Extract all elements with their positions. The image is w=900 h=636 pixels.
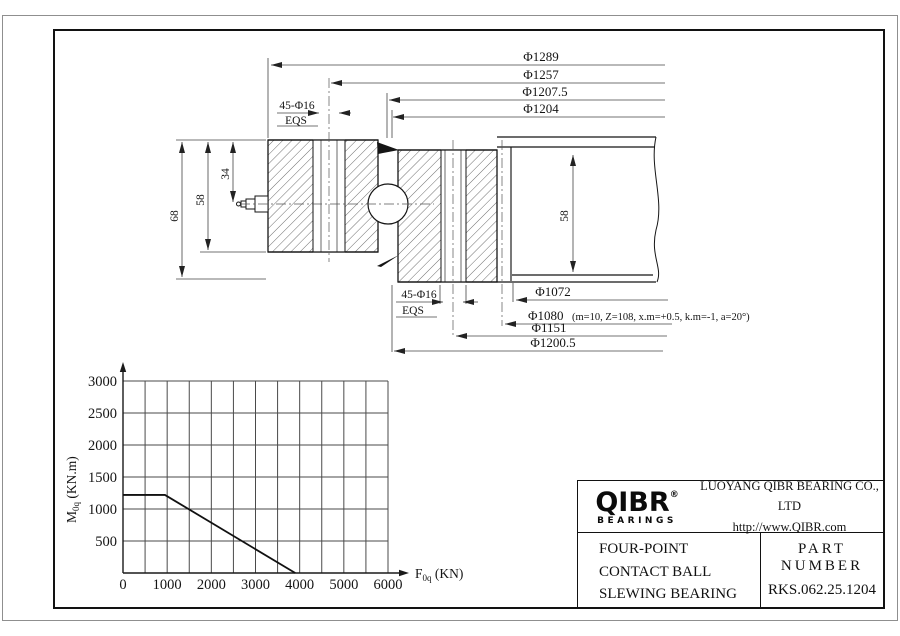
company-name: LUOYANG QIBR BEARING CO., LTD <box>696 476 883 517</box>
chart-grid <box>123 381 388 573</box>
dim-height-68: 68 <box>169 210 181 222</box>
dim-bottom-bolt-size: 45-Φ16 <box>401 289 436 301</box>
dim-phi1080-gear-note: (m=10, Z=108, x.m=+0.5, k.m=-1, a=20°) <box>572 312 750 323</box>
dim-phi1072: Φ1072 <box>535 284 571 299</box>
x-tick-4000: 4000 <box>285 577 314 593</box>
break-line <box>654 137 659 282</box>
dim-phi1204: Φ1204 <box>523 101 559 116</box>
y-tick-1500: 1500 <box>88 470 117 486</box>
upper-seal <box>377 142 399 154</box>
product-description: FOUR-POINT CONTACT BALL SLEWING BEARING <box>578 533 761 607</box>
dim-top-bolt-eqs: EQS <box>285 115 307 127</box>
y-tick-3000: 3000 <box>88 374 117 390</box>
dim-bottom-bolt-eqs: EQS <box>402 305 424 317</box>
x-tick-3000: 3000 <box>241 577 270 593</box>
company-info: LUOYANG QIBR BEARING CO., LTD http://www… <box>696 476 883 538</box>
title-block-header-row: QIBR® BEARINGS LUOYANG QIBR BEARING CO.,… <box>578 481 883 533</box>
dim-plate-58: 58 <box>559 210 571 222</box>
engineering-drawing-page: { "drawing": { "top_dims": ["Φ1289", "Φ1… <box>0 0 900 636</box>
registered-mark-icon: ® <box>670 490 679 500</box>
y-axis-label: M0q (KN.m) <box>64 456 81 523</box>
part-number-cell: PART NUMBER RKS.062.25.1204 <box>761 533 883 607</box>
dim-height-34: 34 <box>220 168 232 180</box>
x-tick-1000: 1000 <box>153 577 182 593</box>
dim-phi1200-5: Φ1200.5 <box>530 335 575 350</box>
y-tick-1000: 1000 <box>88 502 117 518</box>
title-block-lower-row: FOUR-POINT CONTACT BALL SLEWING BEARING … <box>578 533 883 607</box>
static-limiting-load-curve <box>123 495 295 573</box>
logo-bearings-text: BEARINGS <box>578 517 696 526</box>
company-logo: QIBR® BEARINGS <box>578 487 696 526</box>
dim-top-bolt-size: 45-Φ16 <box>279 100 314 112</box>
y-tick-500: 500 <box>95 534 117 550</box>
dim-phi1289: Φ1289 <box>523 49 559 64</box>
x-tick-0: 0 <box>119 577 126 593</box>
x-axis-label: F0q (KN) <box>415 566 463 583</box>
product-line-3: SLEWING BEARING <box>599 583 760 606</box>
logo-wordmark: QIBR <box>595 487 669 518</box>
dim-phi1151: Φ1151 <box>531 320 566 335</box>
product-line-2: CONTACT BALL <box>599 561 760 584</box>
y-tick-2500: 2500 <box>88 406 117 422</box>
gear-rim-and-plate <box>497 137 659 282</box>
title-block: QIBR® BEARINGS LUOYANG QIBR BEARING CO.,… <box>577 480 884 608</box>
static-load-limit-chart: 0100020003000400050006000500100015002000… <box>64 362 463 593</box>
lower-seal <box>377 255 399 267</box>
part-number-value: RKS.062.25.1204 <box>761 582 883 599</box>
product-line-1: FOUR-POINT <box>599 538 760 561</box>
dim-height-58: 58 <box>195 194 207 206</box>
dim-phi1257: Φ1257 <box>523 67 559 82</box>
part-number-label: PART NUMBER <box>761 541 883 575</box>
x-tick-2000: 2000 <box>197 577 226 593</box>
x-tick-5000: 5000 <box>329 577 358 593</box>
y-tick-2000: 2000 <box>88 438 117 454</box>
x-tick-6000: 6000 <box>374 577 403 593</box>
dim-phi1207-5: Φ1207.5 <box>522 84 567 99</box>
